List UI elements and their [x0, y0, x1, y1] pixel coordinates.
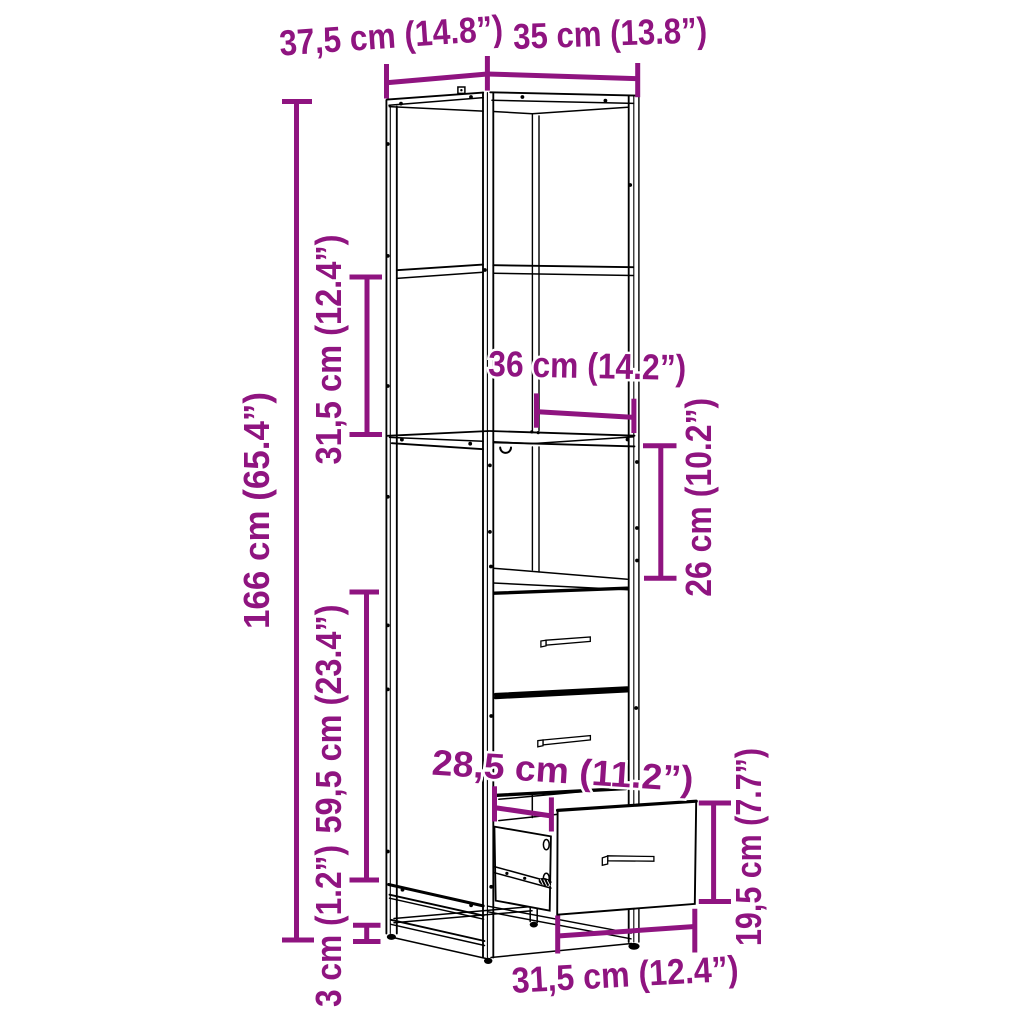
svg-text:31,5 cm (12.4”): 31,5 cm (12.4”): [308, 235, 349, 465]
svg-text:3 cm (1.2”): 3 cm (1.2”): [308, 845, 349, 1007]
svg-text:59,5 cm (23.4”): 59,5 cm (23.4”): [308, 605, 349, 834]
svg-text:35 cm (13.8”): 35 cm (13.8”): [512, 9, 707, 57]
svg-text:36 cm (14.2”): 36 cm (14.2”): [488, 343, 687, 388]
svg-text:166 cm (65.4”): 166 cm (65.4”): [236, 392, 277, 629]
svg-text:26 cm (10.2”): 26 cm (10.2”): [678, 398, 719, 597]
svg-text:19,5 cm (7.7”): 19,5 cm (7.7”): [728, 748, 769, 946]
